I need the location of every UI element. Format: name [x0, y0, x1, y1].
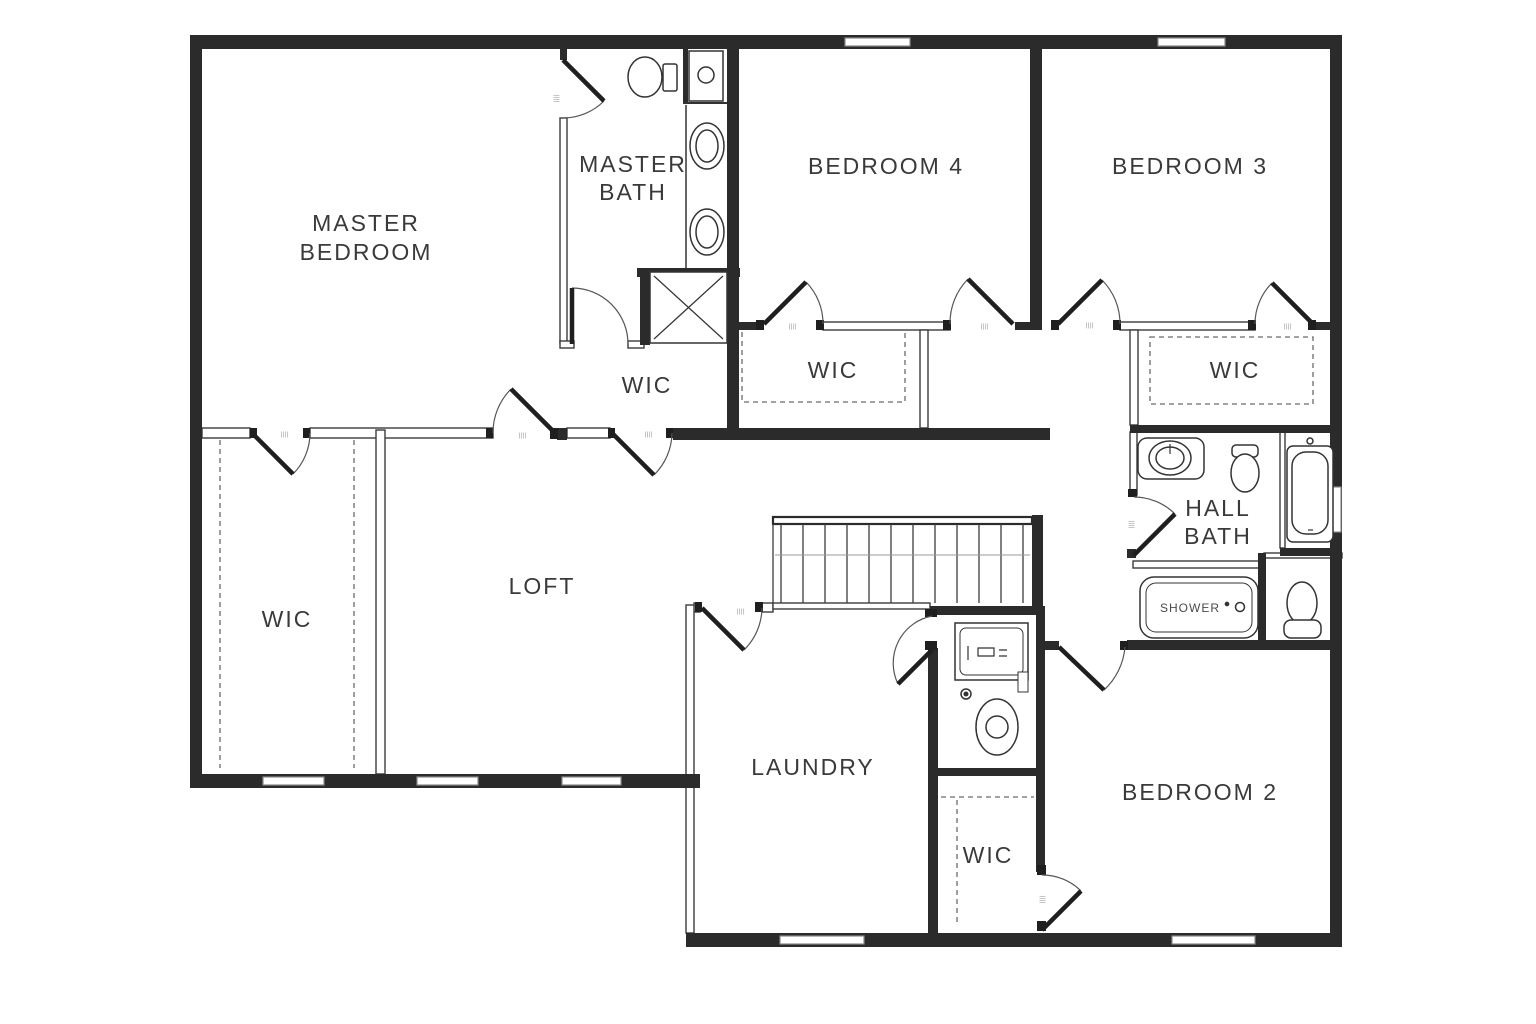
wall [557, 428, 567, 440]
wall [567, 428, 610, 438]
door-swing-arc [806, 282, 823, 324]
room-label-wic-left: WIC [262, 606, 313, 632]
door-swing-arc [950, 279, 968, 324]
room-label-wic-bedroom-3: WIC [1210, 357, 1261, 383]
wall [683, 49, 688, 103]
room-label-laundry: LAUNDRY [751, 754, 875, 780]
door-swing-arc [1042, 875, 1081, 891]
toilet-hall-bath-2 [1284, 582, 1321, 638]
door-swing-arc [293, 433, 310, 474]
fixture-label-shower: SHOWER [1160, 601, 1220, 615]
wall [673, 428, 1050, 440]
door-bedroom-3-entry [1058, 280, 1120, 324]
room-label-hall-bath-1: HALL [1185, 495, 1251, 521]
door-swing-arc [1255, 283, 1272, 324]
door-tag: |||| [281, 432, 289, 438]
floor-plan-page: MASTER BEDROOM MASTER BATH BEDROOM 4 BED… [0, 0, 1536, 1024]
door-tag: |||| [981, 324, 989, 330]
door-wic-bedroom-3 [1255, 283, 1313, 324]
door-leaf [968, 279, 1013, 324]
shower-master-bath [650, 272, 727, 343]
wall [376, 430, 385, 774]
floor-plan: MASTER BEDROOM MASTER BATH BEDROOM 4 BED… [0, 0, 1536, 1024]
room-label-master-bath-1: MASTER [579, 151, 687, 177]
wall [762, 603, 773, 612]
utility-sink [976, 699, 1018, 755]
stairs [773, 517, 1032, 603]
wall [1127, 640, 1342, 650]
door-master-bath-to-wic [572, 288, 628, 344]
door-tag: |||| [645, 432, 653, 438]
window [562, 777, 621, 785]
door-swing-arc [563, 101, 604, 118]
door-bedroom-4-entry [950, 279, 1013, 324]
room-label-loft: LOFT [509, 573, 576, 599]
door-tag: |||| [1086, 323, 1094, 329]
faucet-knob [961, 689, 971, 699]
door-swing-arc [1104, 647, 1125, 690]
door-bedroom-2-entry [1059, 647, 1125, 690]
window [845, 38, 910, 46]
room-label-hall-bath-2: BATH [1184, 523, 1252, 549]
door-tag: |||| [554, 94, 560, 102]
wall [640, 268, 650, 345]
wall [1280, 548, 1342, 556]
door-leaf [1042, 891, 1081, 930]
door-tag: |||| [737, 609, 745, 615]
door-leaf [563, 60, 604, 101]
door-leaf [898, 650, 932, 684]
toilet-master-bath [628, 57, 677, 97]
wall [937, 768, 1038, 776]
wall [1043, 641, 1059, 650]
wall [920, 330, 928, 428]
door-leaf [764, 282, 806, 324]
window [1158, 38, 1225, 46]
wall [310, 428, 493, 438]
vanity-master-bath [686, 105, 724, 268]
wall [560, 49, 567, 60]
door-tag: |||| [1040, 895, 1046, 903]
room-label-master-bedroom-2: BEDROOM [300, 239, 433, 265]
wall [1133, 561, 1260, 568]
wall [1032, 515, 1043, 613]
room-label-master-bath-2: BATH [599, 179, 667, 205]
wall [928, 648, 938, 933]
door-wic-master [612, 433, 672, 475]
window [417, 777, 478, 785]
door-tag: |||| [1129, 520, 1135, 528]
door-leaf [1272, 283, 1313, 324]
room-labels: MASTER BEDROOM MASTER BATH BEDROOM 4 BED… [262, 151, 1278, 868]
door-tag: |||| [789, 324, 797, 330]
door-swing-arc [572, 288, 628, 344]
stair-rail [773, 517, 1032, 524]
window [1333, 487, 1341, 532]
room-label-wic-bedroom-4: WIC [808, 357, 859, 383]
door-laundry-entry [702, 608, 762, 650]
door-leaf [612, 433, 654, 475]
wall [727, 49, 739, 428]
window [1172, 936, 1255, 944]
room-label-wic-bedroom-2: WIC [963, 842, 1014, 868]
door-swing-arc [744, 608, 762, 650]
wall [823, 322, 950, 330]
wall [1030, 49, 1042, 330]
room-label-bedroom-4: BEDROOM 4 [808, 153, 964, 179]
door-wic-left [252, 433, 310, 474]
door-wic-bedroom-2 [1042, 875, 1081, 930]
wall [1280, 432, 1285, 548]
bathtub-hall-bath [1287, 438, 1333, 542]
wall [1315, 322, 1333, 330]
wall [773, 603, 930, 609]
door-master-bath-entry [563, 60, 604, 118]
wall [1130, 330, 1138, 425]
wall [1130, 432, 1137, 495]
vanity-hall-bath [1138, 438, 1204, 479]
room-label-bedroom-2: BEDROOM 2 [1122, 779, 1278, 805]
window [780, 936, 864, 944]
toilet-hall-bath [1231, 445, 1259, 492]
door-leaf [511, 389, 555, 433]
room-label-bedroom-3: BEDROOM 3 [1112, 153, 1268, 179]
wall [686, 605, 694, 933]
door-swing-arc [1134, 497, 1175, 514]
door-wic-bedroom-4 [764, 282, 823, 324]
door-swing-arc [1102, 280, 1120, 324]
door-leaf [1134, 514, 1175, 555]
door-master-bedroom-entry [493, 389, 555, 433]
cabinet-master-bath [683, 51, 727, 103]
door-swing-arc [493, 389, 511, 433]
wall [560, 118, 567, 343]
wall-left [190, 35, 202, 788]
door-tag: |||| [1284, 324, 1292, 330]
door-leaf [1059, 647, 1104, 690]
room-label-master-bedroom-1: MASTER [312, 210, 420, 236]
wall [930, 606, 1043, 615]
washer [955, 623, 1028, 692]
window [263, 777, 324, 785]
wall [1120, 322, 1255, 330]
room-label-wic-master: WIC [622, 372, 673, 398]
door-tag: |||| [519, 433, 527, 439]
wall [1015, 322, 1032, 330]
door-leaf [252, 433, 293, 474]
wall [202, 428, 250, 438]
wall [1258, 553, 1266, 648]
door-hall-bath-entry [1134, 497, 1175, 555]
door-leaf [1058, 280, 1102, 324]
door-swing-arc [654, 433, 672, 475]
wall [1130, 425, 1342, 433]
stair-treads [773, 524, 1023, 603]
